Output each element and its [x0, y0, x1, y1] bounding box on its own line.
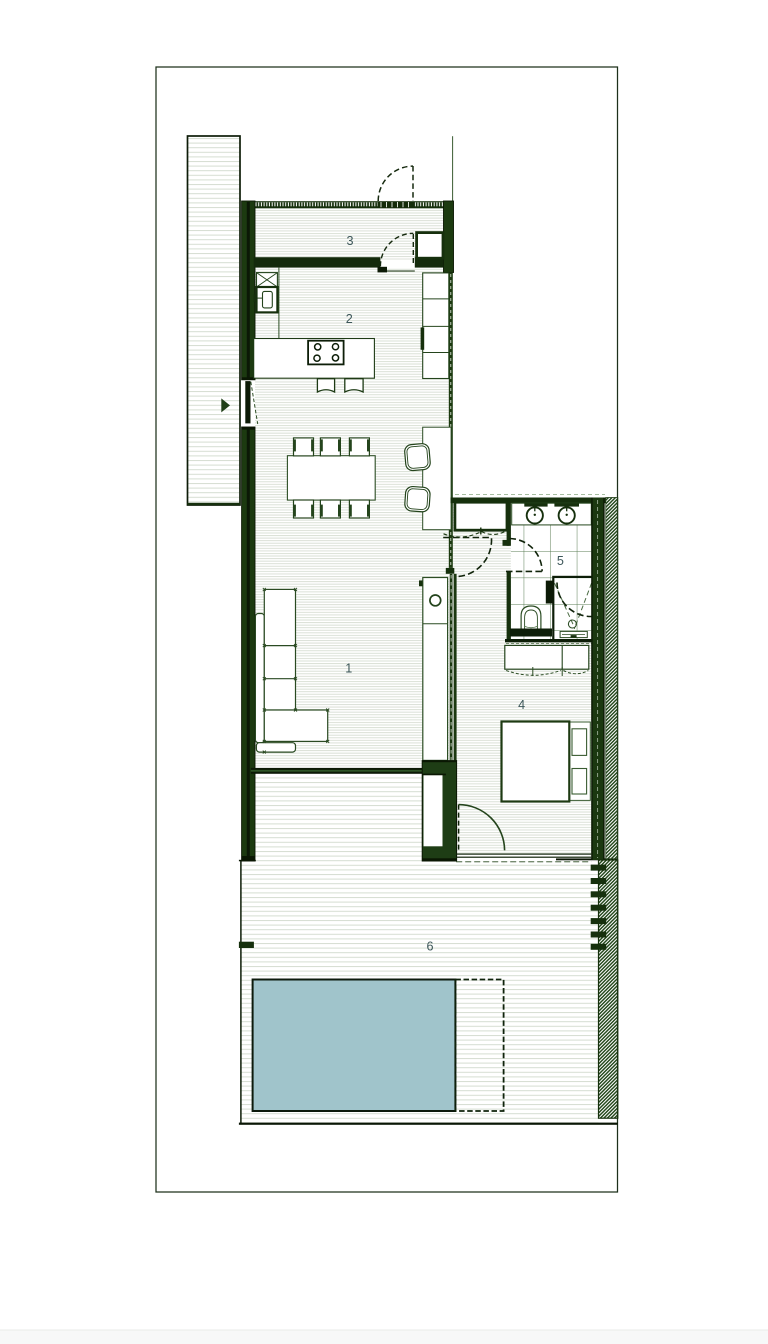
svg-text:5: 5: [557, 554, 564, 568]
svg-text:2: 2: [346, 312, 353, 326]
svg-text:3: 3: [346, 234, 353, 248]
svg-text:1: 1: [345, 661, 352, 675]
svg-text:4: 4: [518, 698, 525, 712]
svg-text:6: 6: [426, 940, 433, 954]
